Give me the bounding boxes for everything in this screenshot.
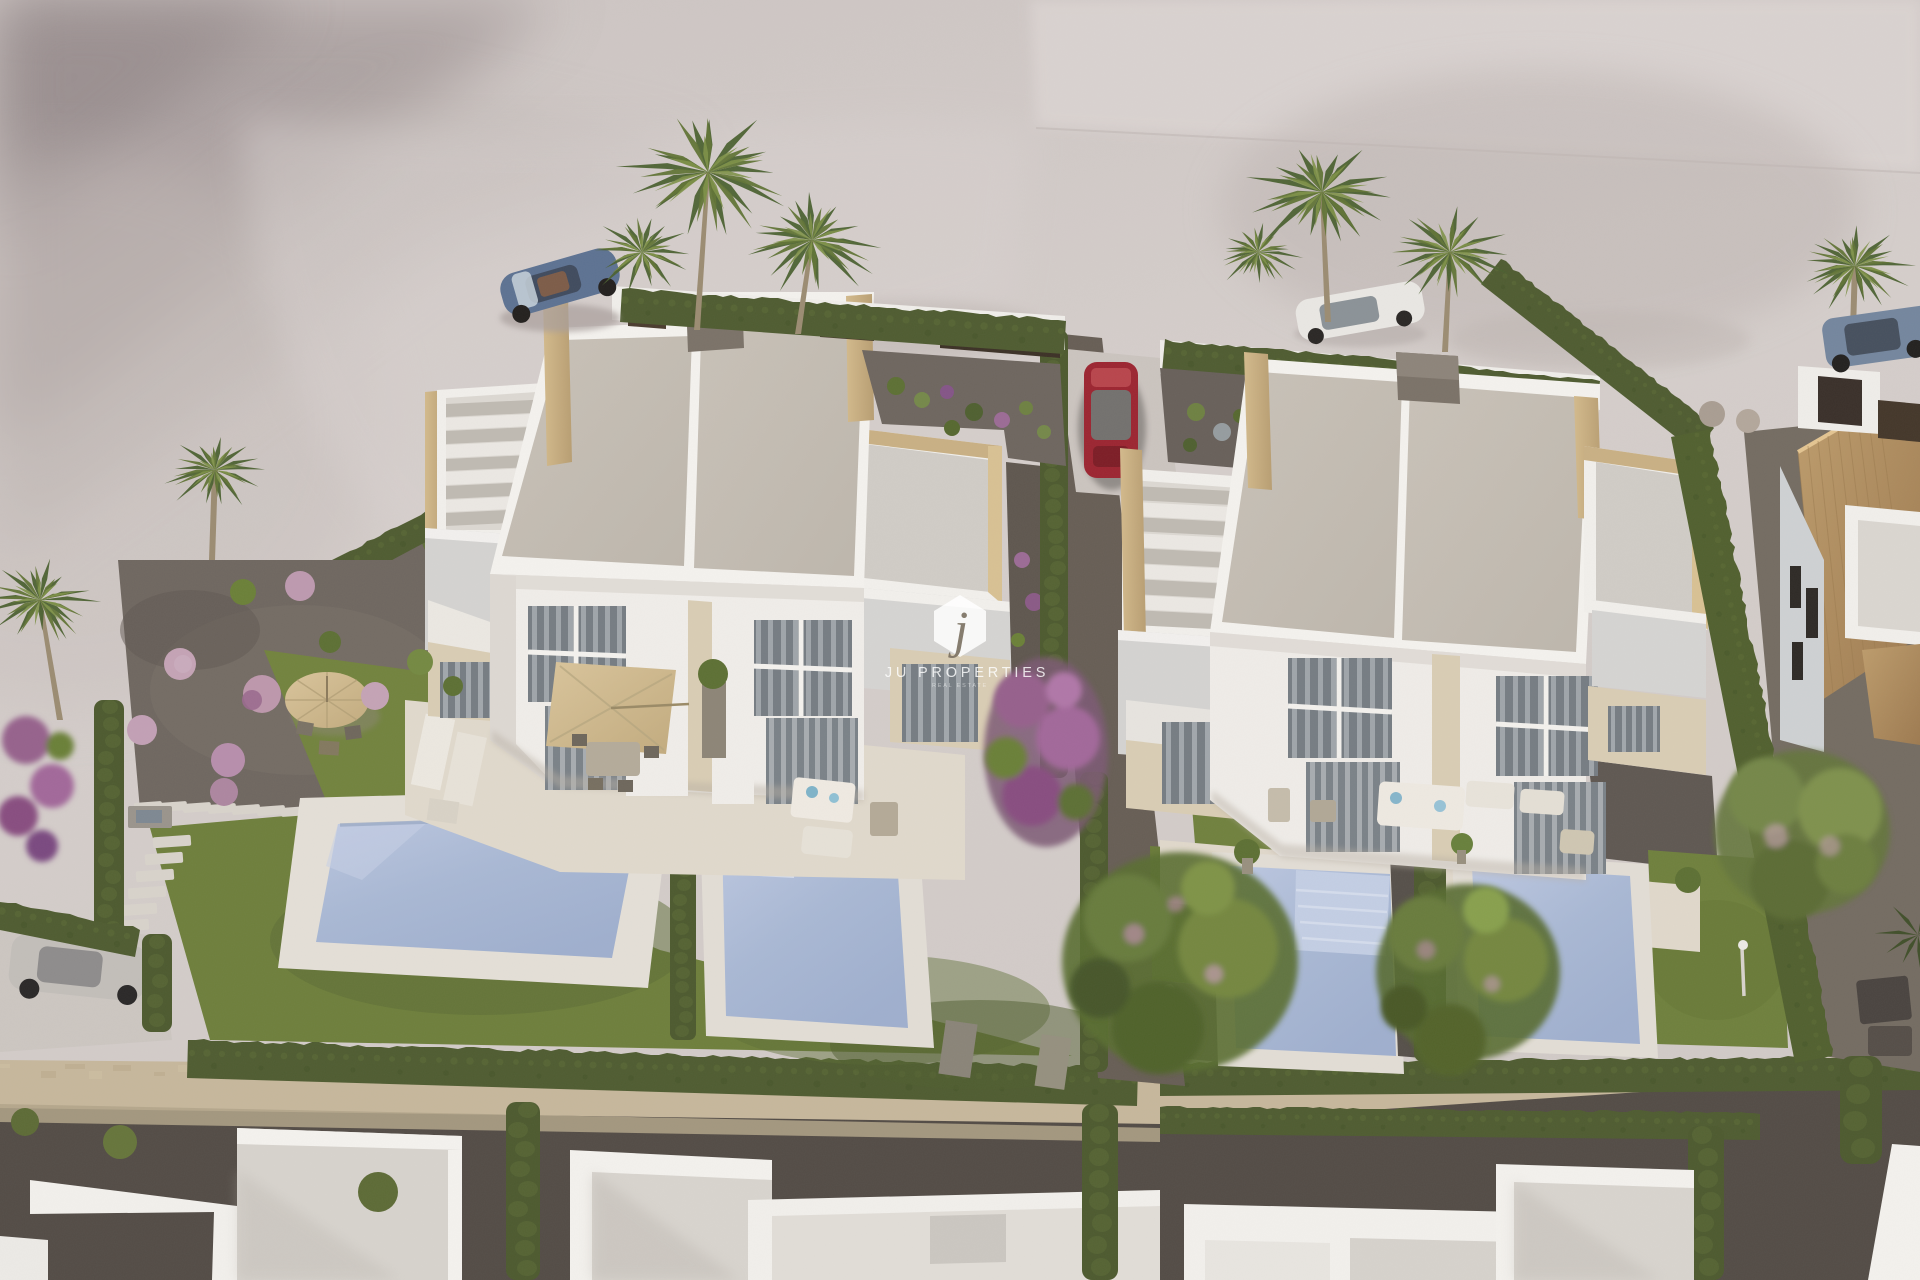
svg-text:JU PROPERTIES: JU PROPERTIES [885,665,1049,681]
svg-text:REAL ESTATE: REAL ESTATE [932,683,988,689]
